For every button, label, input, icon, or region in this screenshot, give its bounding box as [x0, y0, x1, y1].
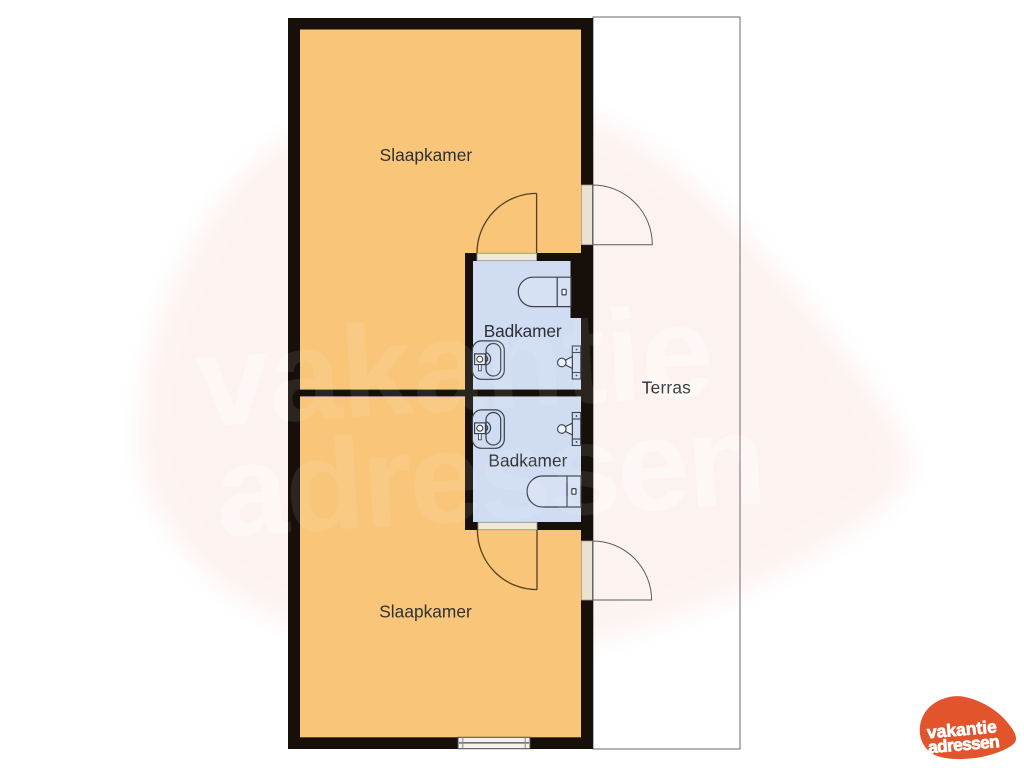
svg-text:Slaapkamer: Slaapkamer [380, 145, 473, 165]
svg-text:Slaapkamer: Slaapkamer [379, 602, 472, 622]
